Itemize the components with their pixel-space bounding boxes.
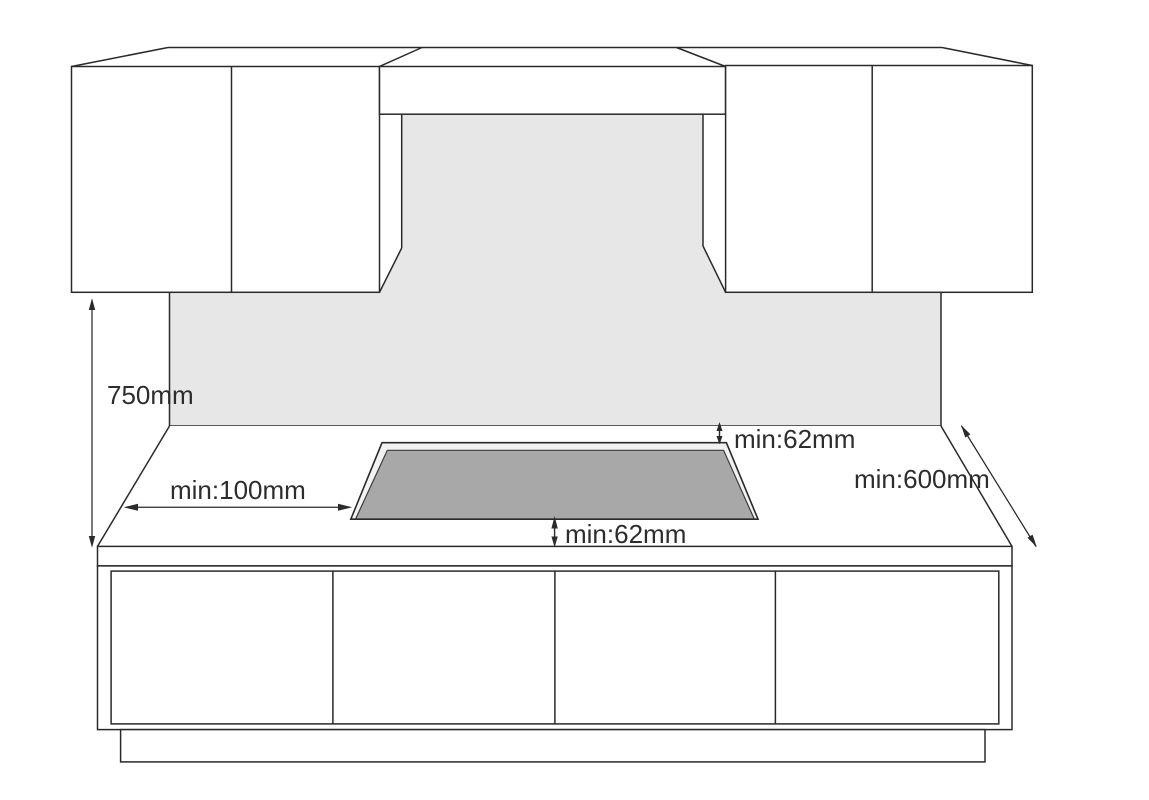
svg-text:min:62mm: min:62mm <box>565 519 686 549</box>
svg-text:min:62mm: min:62mm <box>734 424 855 454</box>
svg-text:750mm: 750mm <box>107 380 194 410</box>
svg-text:min:600mm: min:600mm <box>854 464 990 494</box>
svg-text:min:100mm: min:100mm <box>170 475 306 505</box>
